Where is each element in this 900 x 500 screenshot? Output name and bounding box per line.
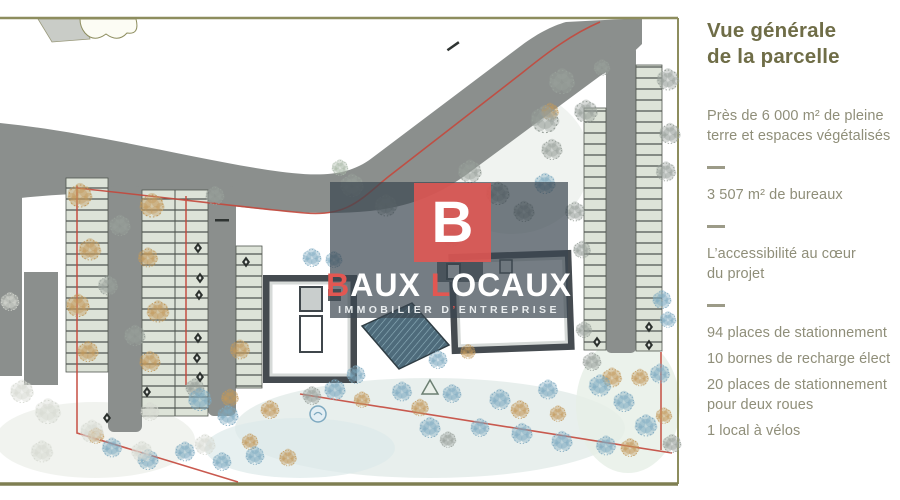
survey-dash (215, 219, 229, 222)
tree-symbol (35, 398, 61, 423)
panel-paragraph: 10 bornes de recharge élect (707, 349, 900, 369)
tagline-segment-text: ENTREPRISE (459, 304, 560, 316)
stall-row-c (236, 246, 262, 388)
info-panel-items: Près de 6 000 m² de pleine terre et espa… (707, 106, 900, 441)
info-panel: Vue générale de la parcelle Près de 6 00… (707, 18, 900, 447)
panel-paragraph: Près de 6 000 m² de pleine terre et espa… (707, 106, 900, 146)
west-road (0, 150, 22, 376)
page-title: Vue générale de la parcelle (707, 18, 900, 70)
brand-logo-letter: B (432, 190, 474, 255)
panel-divider (707, 304, 725, 307)
tree-symbol (574, 100, 598, 123)
brand-segment-text (421, 267, 431, 303)
tree-symbol (538, 379, 558, 399)
stall-row-east-left (584, 108, 606, 350)
tree-symbol (332, 159, 349, 175)
adjacent-footprints (38, 19, 137, 42)
brand-segment-accent: L (431, 267, 452, 303)
brand-segment-text: AUX (350, 267, 421, 303)
survey-dash-2 (447, 41, 460, 51)
west-block (24, 272, 58, 385)
panel-paragraph: 20 places de stationnement pour deux rou… (707, 375, 900, 415)
brand-logo-square: B (414, 183, 491, 262)
panel-paragraph: 94 places de stationnement (707, 323, 900, 343)
panel-paragraph: L’accessibilité au cœur du projet (707, 244, 900, 284)
watermark-band: B BAUX LOCAUX IMMOBILIER D’ENTREPRISE (330, 182, 568, 318)
fountain-symbol (310, 406, 326, 422)
panel-paragraph: 1 local à vélos (707, 421, 900, 441)
stall-row-east-right (636, 65, 662, 351)
brand-tagline: IMMOBILIER D’ENTREPRISE (330, 304, 568, 316)
aisle-east (606, 46, 636, 353)
panel-divider (707, 225, 725, 228)
brochure-page: B BAUX LOCAUX IMMOBILIER D’ENTREPRISE Vu… (0, 0, 900, 500)
panel-divider (707, 166, 725, 169)
tagline-segment-text: IMMOBILIER D (338, 304, 452, 316)
panel-paragraph: 3 507 m² de bureaux (707, 185, 900, 205)
tree-symbol (302, 248, 321, 266)
brand-name: BAUX LOCAUX (326, 269, 572, 301)
brand-segment-accent: B (326, 267, 350, 303)
brand-segment-text: OCAUX (451, 267, 572, 303)
